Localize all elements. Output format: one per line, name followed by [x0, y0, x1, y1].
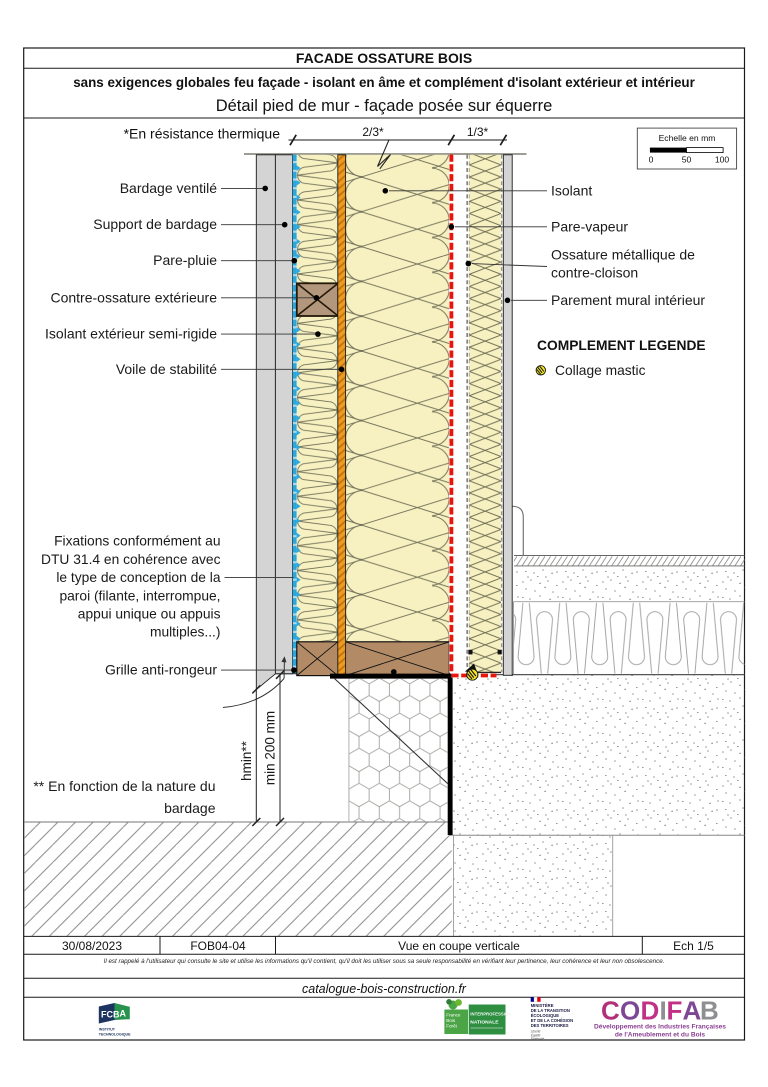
- svg-text:Fixations conformément au: Fixations conformément au: [54, 534, 220, 549]
- svg-text:Détail pied de mur - façade po: Détail pied de mur - façade posée sur éq…: [216, 97, 553, 115]
- svg-text:50: 50: [682, 155, 692, 165]
- svg-text:DTU 31.4 en cohérence avec: DTU 31.4 en cohérence avec: [41, 552, 221, 567]
- svg-text:Ech 1/5: Ech 1/5: [673, 939, 714, 953]
- svg-text:appui unique ou appuis: appui unique ou appuis: [78, 607, 221, 622]
- svg-text:NATIONALE: NATIONALE: [470, 1020, 499, 1026]
- svg-text:30/08/2023: 30/08/2023: [62, 939, 122, 953]
- svg-text:sans exigences globales feu fa: sans exigences globales feu façade - iso…: [73, 75, 695, 90]
- svg-text:2/3*: 2/3*: [362, 125, 384, 139]
- svg-text:0: 0: [649, 155, 654, 165]
- svg-text:Voile de stabilité: Voile de stabilité: [116, 361, 217, 377]
- svg-text:COMPLEMENT LEGENDE: COMPLEMENT LEGENDE: [537, 338, 706, 353]
- svg-text:Ossature métallique de: Ossature métallique de: [551, 247, 695, 263]
- svg-text:Isolant extérieur semi-rigide: Isolant extérieur semi-rigide: [45, 326, 217, 342]
- svg-text:catalogue-bois-construction.fr: catalogue-bois-construction.fr: [302, 982, 467, 996]
- svg-text:Parement mural intérieur: Parement mural intérieur: [551, 292, 705, 308]
- svg-text:Grille anti-rongeur: Grille anti-rongeur: [105, 662, 217, 678]
- svg-text:Collage mastic: Collage mastic: [555, 363, 646, 378]
- svg-text:FACADE OSSATURE BOIS: FACADE OSSATURE BOIS: [296, 50, 472, 66]
- svg-text:Vue en coupe verticale: Vue en coupe verticale: [398, 939, 520, 953]
- svg-text:multiples...): multiples...): [150, 625, 221, 640]
- svg-text:C: C: [601, 996, 620, 1026]
- svg-text:A: A: [683, 996, 702, 1026]
- svg-text:1/3*: 1/3*: [467, 125, 489, 139]
- svg-text:Isolant: Isolant: [551, 182, 592, 198]
- svg-text:Pare-pluie: Pare-pluie: [153, 252, 217, 268]
- svg-text:contre-cloison: contre-cloison: [551, 265, 638, 281]
- svg-text:*En résistance thermique: *En résistance thermique: [124, 126, 281, 142]
- svg-text:INTERPROFESSION: INTERPROFESSION: [470, 1012, 511, 1017]
- svg-text:hmin**: hmin**: [239, 740, 254, 781]
- svg-text:B: B: [700, 996, 719, 1026]
- svg-text:A: A: [120, 1009, 127, 1019]
- svg-text:O: O: [620, 996, 640, 1026]
- svg-text:le type de conception de la: le type de conception de la: [56, 570, 220, 585]
- svg-text:D: D: [641, 996, 660, 1026]
- svg-text:DES TERRITOIRES: DES TERRITOIRES: [531, 1023, 569, 1028]
- svg-text:Bardage ventilé: Bardage ventilé: [120, 180, 218, 196]
- svg-text:Il est rappelé à l'utilisateur: Il est rappelé à l'utilisateur qui consu…: [104, 958, 665, 965]
- svg-text:Contre-ossature extérieure: Contre-ossature extérieure: [50, 289, 217, 305]
- svg-text:FOB04-04: FOB04-04: [190, 939, 246, 953]
- svg-text:100: 100: [715, 155, 730, 165]
- svg-text:Echelle en mm: Echelle en mm: [659, 133, 716, 143]
- svg-text:bardage: bardage: [164, 800, 216, 816]
- svg-text:Support de bardage: Support de bardage: [93, 216, 217, 232]
- svg-text:Pare-vapeur: Pare-vapeur: [551, 218, 628, 234]
- svg-text:INSTITUT: INSTITUT: [99, 1028, 116, 1032]
- svg-text:Fraternité: Fraternité: [531, 1037, 545, 1041]
- svg-text:Forêt: Forêt: [446, 1024, 457, 1029]
- svg-text:France: France: [446, 1013, 461, 1018]
- svg-text:** En fonction de la nature du: ** En fonction de la nature du: [33, 778, 215, 794]
- svg-text:Développement des Industries F: Développement des Industries Françaises: [594, 1024, 726, 1031]
- svg-text:min 200 mm: min 200 mm: [263, 711, 278, 785]
- svg-text:TECHNOLOGIQUE: TECHNOLOGIQUE: [99, 1033, 131, 1037]
- svg-text:de l'Ameublement et du Bois: de l'Ameublement et du Bois: [615, 1032, 706, 1039]
- svg-text:paroi (filante, interrompue,: paroi (filante, interrompue,: [59, 588, 220, 603]
- svg-text:Bois: Bois: [446, 1018, 456, 1023]
- svg-text:F: F: [667, 996, 683, 1026]
- svg-text:FCB: FCB: [101, 1010, 120, 1020]
